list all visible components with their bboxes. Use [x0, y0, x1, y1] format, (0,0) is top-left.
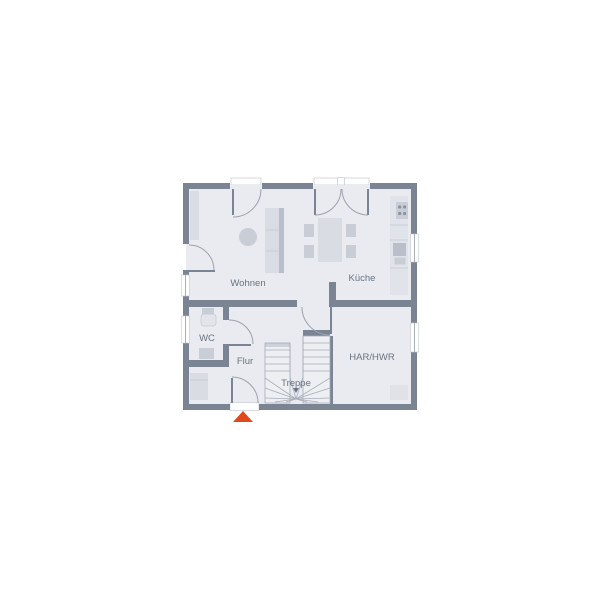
toilet — [201, 308, 216, 326]
wall-stair-hwr-divider — [330, 336, 333, 404]
label-kueche: Küche — [349, 273, 376, 284]
window-right-hwr — [411, 323, 419, 352]
cooktop — [396, 202, 408, 219]
round-table — [239, 228, 257, 246]
flur-wardrobe — [190, 373, 208, 400]
kitchen-sink — [393, 243, 406, 265]
label-treppe: Treppe — [281, 378, 311, 389]
floor-plan-canvas: Wohnen Küche WC Flur Treppe HAR/HWR — [0, 0, 600, 600]
chair — [304, 245, 314, 258]
window-left-wc — [182, 316, 190, 343]
wall-middle-right — [336, 300, 417, 307]
floor-area — [186, 186, 414, 407]
label-flur: Flur — [237, 356, 253, 367]
wall-kitchen-stub — [329, 282, 336, 307]
window-left-wohnen — [182, 275, 190, 296]
sideboard — [190, 191, 199, 240]
chair — [304, 224, 314, 237]
window-right-kueche — [411, 234, 419, 262]
wall-middle-left — [183, 300, 297, 307]
chair — [346, 245, 356, 258]
chair — [346, 224, 356, 237]
wall-unit — [265, 208, 284, 273]
label-wc: WC — [199, 333, 215, 344]
label-wohnen: Wohnen — [230, 278, 265, 289]
kitchen-counter — [390, 196, 408, 295]
floor-plan-drawing: Wohnen Küche WC Flur Treppe HAR/HWR — [0, 0, 600, 600]
wall-wc-east-upper — [223, 307, 229, 320]
wall-wc-south — [183, 360, 229, 367]
entrance-arrow-icon — [233, 411, 253, 422]
dining-table — [318, 218, 342, 262]
hwr-appliance — [390, 385, 408, 400]
label-hwr: HAR/HWR — [349, 352, 395, 363]
wc-sink — [199, 348, 214, 359]
